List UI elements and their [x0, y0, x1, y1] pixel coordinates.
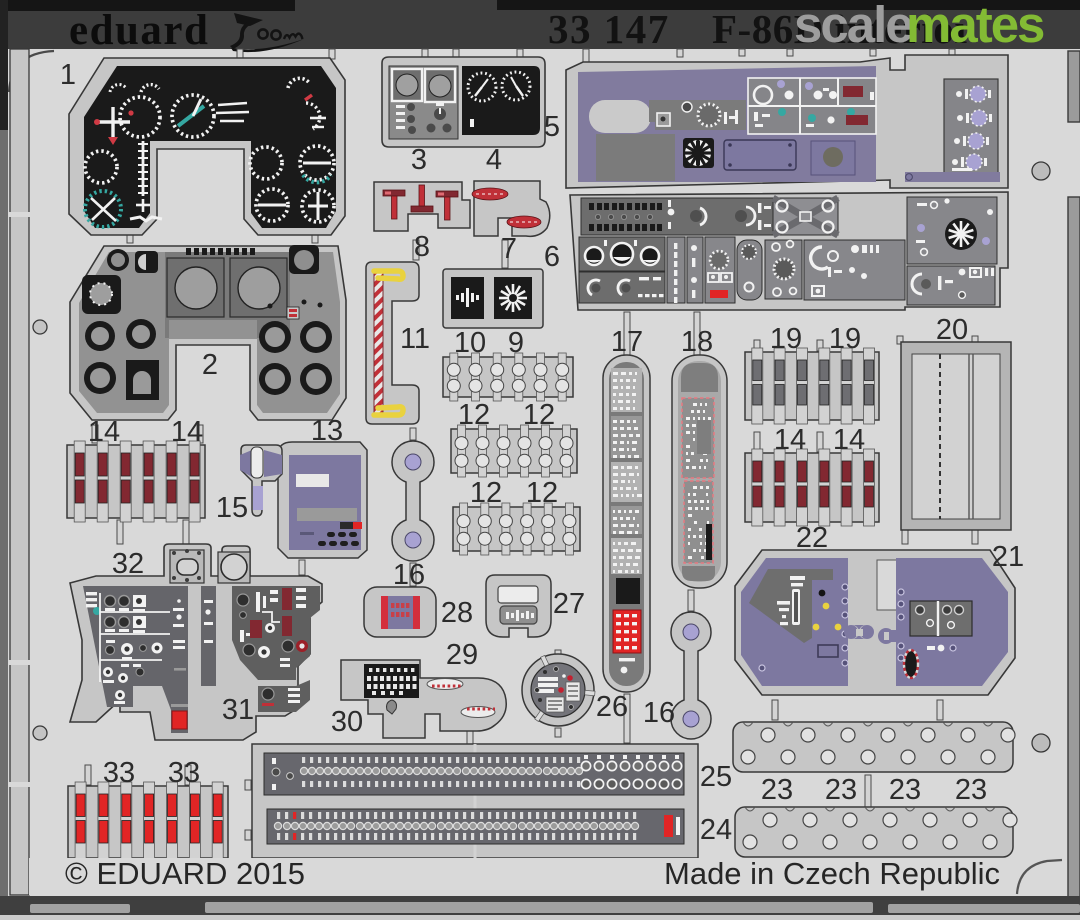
svg-text:21: 21: [992, 541, 1024, 573]
svg-text:26: 26: [596, 691, 628, 723]
svg-text:32: 32: [112, 548, 144, 580]
svg-text:10: 10: [454, 327, 486, 359]
svg-text:23: 23: [889, 774, 921, 806]
svg-text:4: 4: [486, 144, 502, 176]
svg-text:22: 22: [796, 522, 828, 554]
svg-text:mates: mates: [906, 0, 1044, 53]
svg-text:24: 24: [700, 814, 732, 846]
svg-text:16: 16: [393, 559, 425, 591]
svg-text:25: 25: [700, 761, 732, 793]
svg-text:20: 20: [936, 314, 968, 346]
svg-text:14: 14: [88, 416, 120, 448]
svg-text:11: 11: [400, 323, 430, 355]
svg-text:33 147: 33 147: [548, 6, 670, 52]
svg-text:Made in Czech Republic: Made in Czech Republic: [664, 856, 1000, 891]
svg-text:1: 1: [60, 59, 76, 91]
svg-text:14: 14: [833, 424, 865, 456]
svg-text:15: 15: [216, 492, 248, 524]
svg-text:19: 19: [770, 323, 802, 355]
svg-text:13: 13: [311, 415, 343, 447]
svg-text:28: 28: [441, 597, 473, 629]
svg-text:16: 16: [643, 697, 675, 729]
svg-text:8: 8: [414, 231, 430, 263]
svg-text:29: 29: [446, 639, 478, 671]
svg-text:18: 18: [681, 326, 713, 358]
svg-text:33: 33: [103, 757, 135, 789]
svg-text:31: 31: [222, 694, 254, 726]
svg-text:scale: scale: [794, 0, 912, 53]
svg-text:30: 30: [331, 706, 363, 738]
svg-text:23: 23: [825, 774, 857, 806]
svg-text:17: 17: [611, 326, 643, 358]
svg-text:19: 19: [829, 323, 861, 355]
svg-text:7: 7: [501, 233, 517, 265]
svg-text:14: 14: [774, 424, 806, 456]
svg-text:27: 27: [553, 588, 585, 620]
svg-text:© EDUARD 2015: © EDUARD 2015: [65, 856, 305, 891]
svg-text:3: 3: [411, 144, 427, 176]
svg-text:23: 23: [761, 774, 793, 806]
svg-text:6: 6: [544, 241, 560, 273]
svg-text:eduard: eduard: [69, 7, 209, 54]
svg-text:14: 14: [171, 416, 203, 448]
svg-text:23: 23: [955, 774, 987, 806]
svg-text:2: 2: [202, 349, 218, 381]
svg-text:5: 5: [544, 111, 560, 143]
svg-text:33: 33: [168, 757, 200, 789]
